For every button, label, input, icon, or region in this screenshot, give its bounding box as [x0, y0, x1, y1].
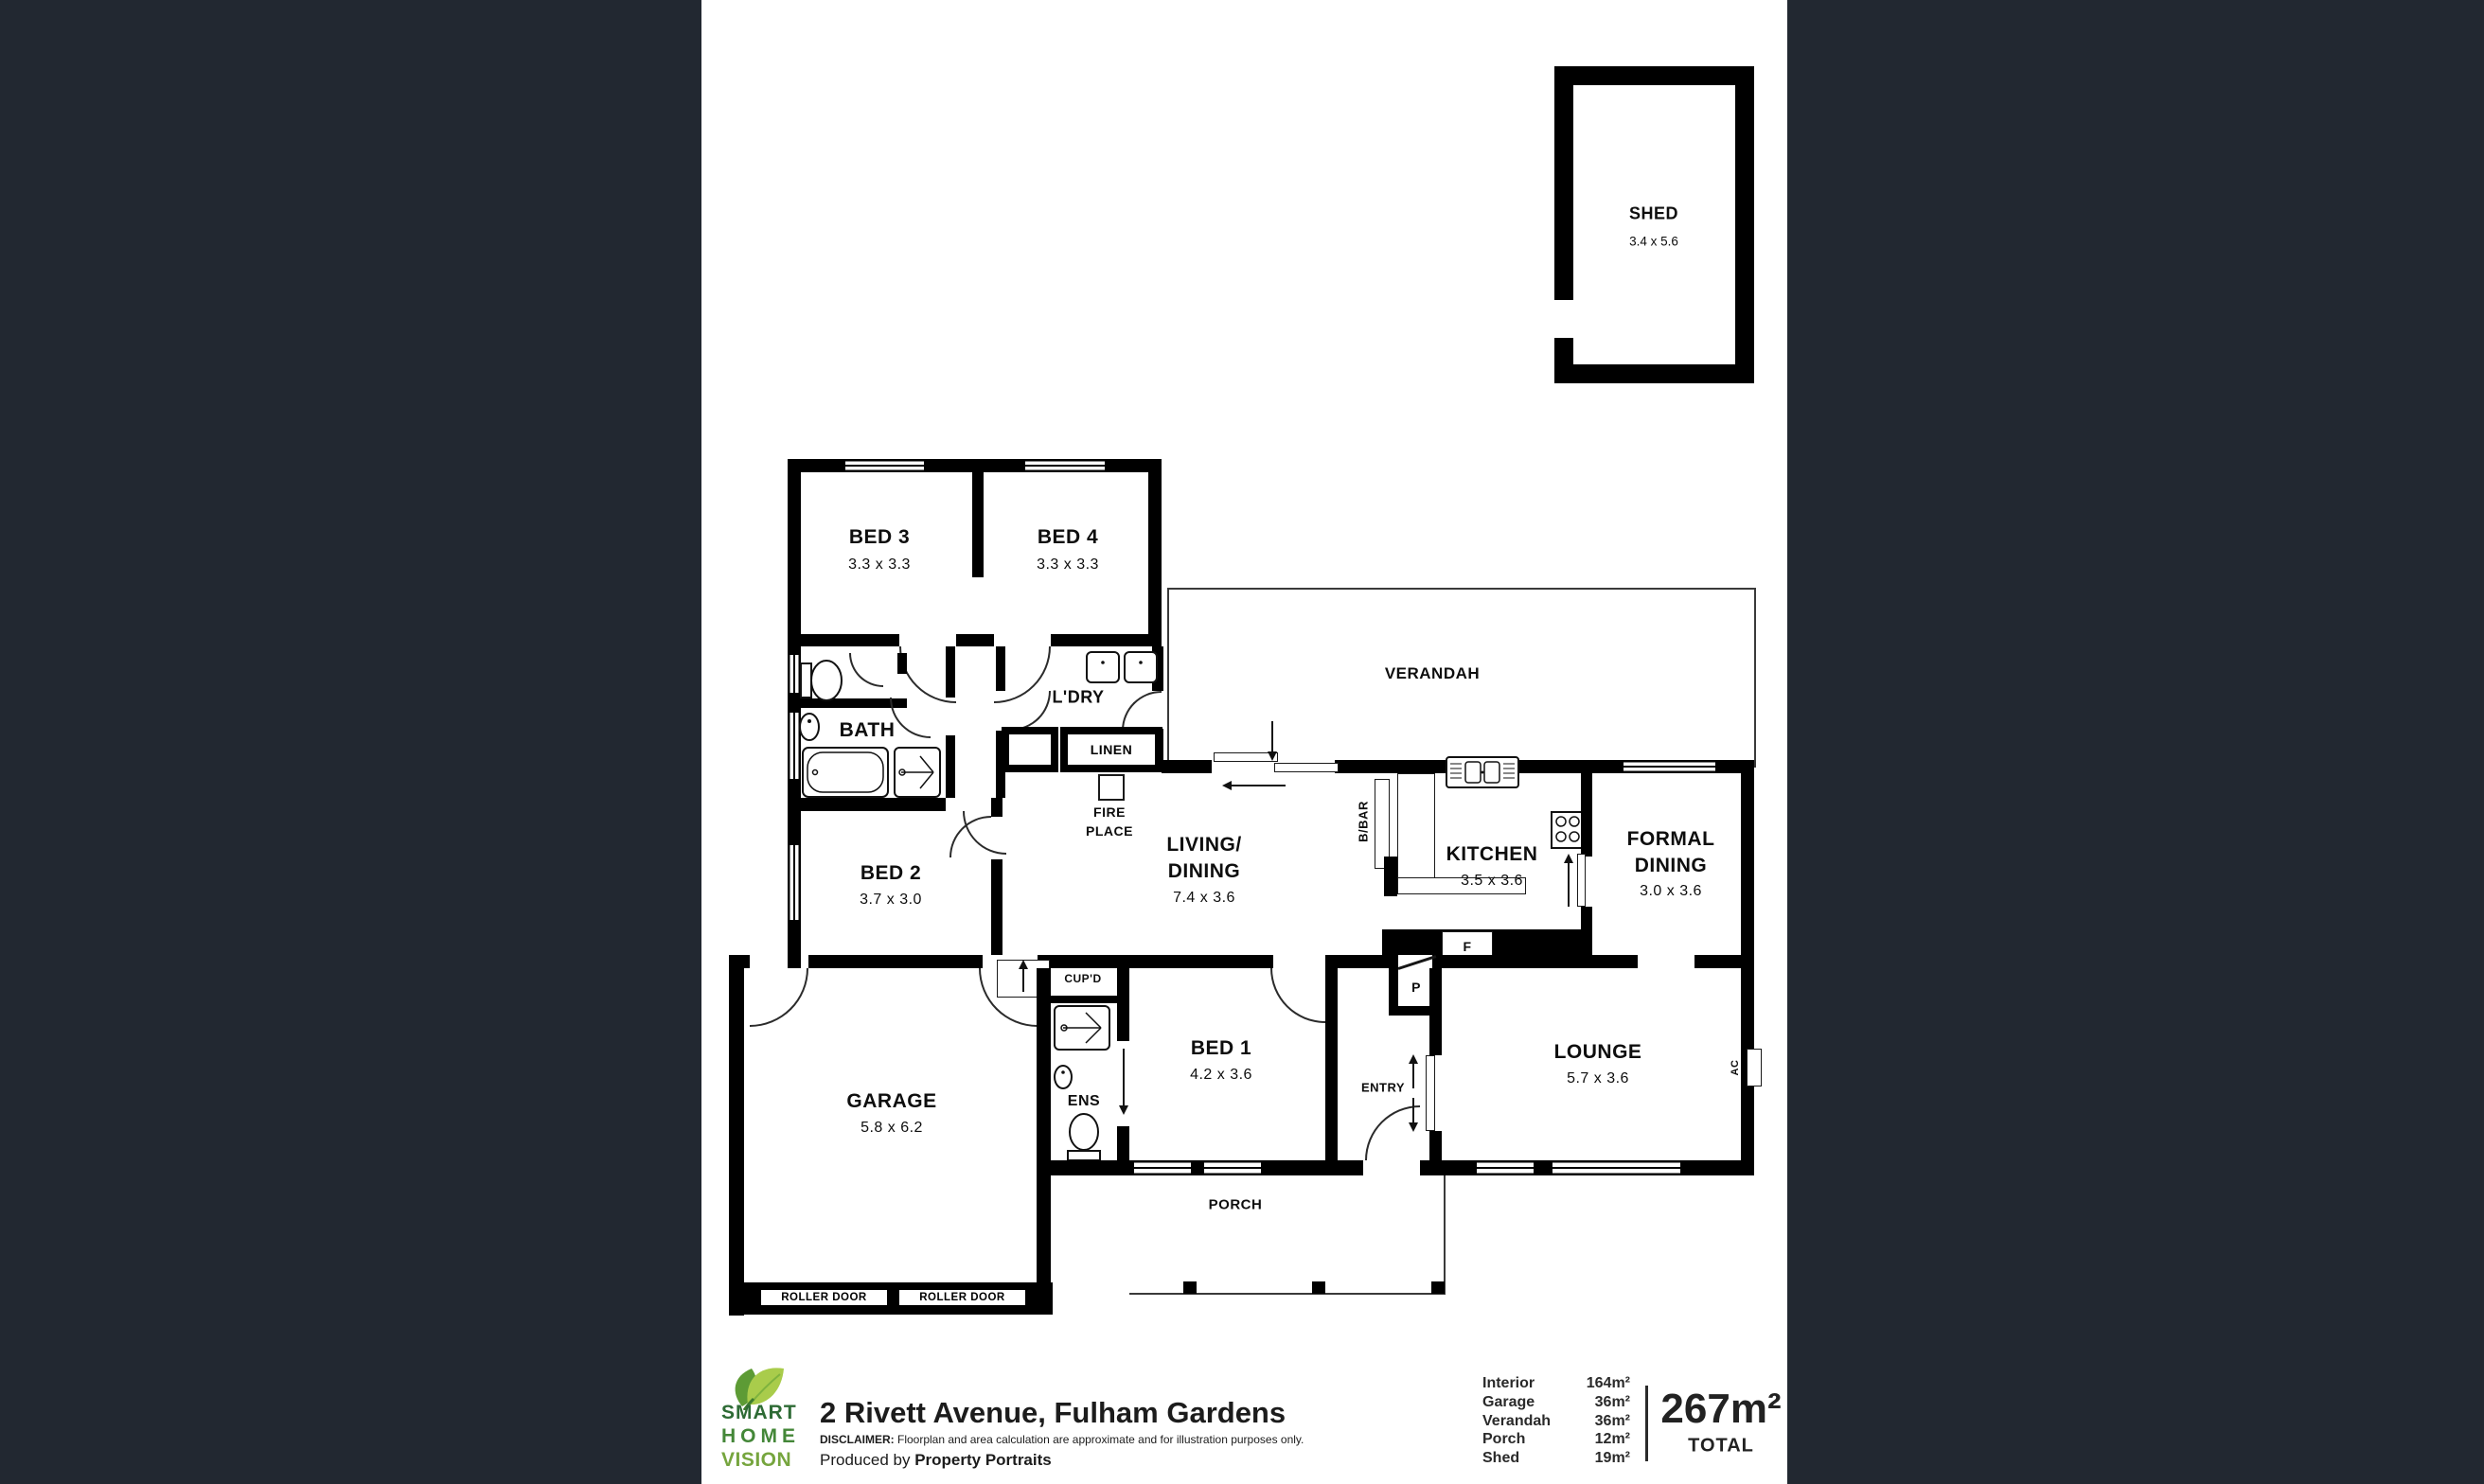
- wall-segment: [729, 968, 744, 1316]
- linen-closet: LINEN: [1060, 727, 1162, 772]
- room-label-lounge: LOUNGE: [1554, 1041, 1642, 1064]
- arrow-up-icon: [1564, 854, 1573, 863]
- wall-segment: [956, 634, 994, 646]
- total-label: TOTAL: [1688, 1436, 1754, 1457]
- wall-segment: [1051, 996, 1117, 1003]
- area-label: Interior: [1482, 1375, 1535, 1392]
- wall-segment: [1519, 760, 1623, 773]
- room-dims-living: 7.4 x 3.6: [1173, 890, 1235, 907]
- arrow-line: [1412, 1098, 1414, 1124]
- arrow-down-icon: [1409, 1122, 1418, 1132]
- room-label-cupd: CUP'D: [1064, 972, 1101, 985]
- kitchen-counter: [1397, 773, 1435, 879]
- fireplace-box: [1098, 774, 1125, 801]
- roller-door-label: ROLLER DOOR: [781, 1292, 866, 1303]
- room-label-ldry: L'DRY: [1052, 688, 1104, 708]
- shower-icon: [1054, 1005, 1110, 1051]
- area-label: Shed: [1482, 1450, 1519, 1467]
- wall-segment: [1735, 66, 1754, 383]
- room-label-bed3: BED 3: [849, 526, 910, 549]
- wall-segment: [1554, 66, 1573, 300]
- logo-text-home: HOME: [721, 1426, 800, 1446]
- room-label-kitchen: KITCHEN: [1446, 843, 1538, 866]
- porch-outline: [1129, 1175, 1446, 1295]
- wall-segment: [1554, 364, 1754, 383]
- produced-by: Produced by Property Portraits: [820, 1451, 1052, 1470]
- disclaimer-label: DISCLAIMER:: [820, 1433, 895, 1446]
- area-row: Interior164m²: [1482, 1375, 1630, 1392]
- area-label: Porch: [1482, 1431, 1525, 1448]
- wall-segment: [1037, 1160, 1363, 1175]
- laundry-tubs-icon: [1086, 651, 1158, 683]
- room-label-entry: ENTRY: [1361, 1081, 1405, 1095]
- bathtub-icon: [802, 747, 889, 798]
- wall-segment: [1117, 1126, 1129, 1160]
- wall-segment: [1162, 760, 1212, 773]
- room-label-living-2: DINING: [1168, 860, 1241, 883]
- wall-segment: [1037, 968, 1051, 1295]
- address: 2 Rivett Avenue, Fulham Gardens: [820, 1396, 1286, 1430]
- room-label-bed2: BED 2: [861, 862, 921, 885]
- room-label-pantry: P: [1411, 980, 1421, 995]
- window: [1134, 1160, 1191, 1175]
- arrow-down-icon: [1268, 751, 1277, 761]
- area-label: Garage: [1482, 1394, 1535, 1411]
- wall-segment: [1335, 760, 1446, 773]
- sliding-door-kitchen: [1577, 854, 1586, 907]
- toilet-icon: [800, 658, 843, 703]
- room-label-bed1: BED 1: [1191, 1037, 1251, 1060]
- wall-segment: [1384, 857, 1397, 896]
- room-label-living-1: LIVING/: [1166, 834, 1241, 857]
- arrow-line: [1231, 785, 1286, 786]
- arrow-line: [1123, 1049, 1125, 1107]
- wall-segment: [1117, 968, 1129, 1041]
- toilet-icon: [1064, 1113, 1104, 1162]
- wall-segment: [1429, 968, 1442, 1055]
- room-label-bed4: BED 4: [1038, 526, 1098, 549]
- window: [1025, 459, 1105, 472]
- area-divider: [1645, 1386, 1648, 1461]
- area-value: 36m²: [1595, 1394, 1630, 1411]
- room-label-fireplace-2: PLACE: [1086, 823, 1133, 839]
- disclaimer-text: Floorplan and area calculation are appro…: [895, 1433, 1304, 1446]
- wall-segment: [946, 646, 955, 698]
- wall-segment: [991, 798, 1002, 817]
- wall-segment: [788, 798, 946, 811]
- roller-door-box: ROLLER DOOR: [897, 1288, 1027, 1307]
- wall-segment: [729, 955, 750, 968]
- room-label-porch: PORCH: [1209, 1197, 1263, 1213]
- room-label-formal-1: FORMAL: [1627, 828, 1715, 851]
- sink-icon: [1053, 1064, 1073, 1090]
- wall-segment: [1554, 66, 1754, 85]
- window: [845, 459, 924, 472]
- area-row: Verandah36m²: [1482, 1413, 1630, 1430]
- wall-segment: [1694, 955, 1754, 968]
- wall-segment: [1148, 459, 1162, 646]
- wall-segment: [1051, 634, 1162, 646]
- room-label-bath: BATH: [840, 719, 896, 742]
- sink-icon: [798, 712, 821, 742]
- arrow-line: [1568, 863, 1570, 907]
- wall-segment: [1325, 955, 1389, 968]
- room-label-ens: ENS: [1068, 1093, 1100, 1110]
- wall-segment: [946, 735, 955, 798]
- room-dims-shed: 3.4 x 5.6: [1629, 235, 1678, 249]
- floorplan-page: SHED 3.4 x 5.6 VERANDAH BED 3 3.3 x 3.3 …: [0, 0, 2484, 1484]
- window: [1552, 1160, 1680, 1175]
- kitchen-sink-icon: [1446, 756, 1519, 788]
- area-summary: Interior164m² Garage36m² Verandah36m² Po…: [1482, 1375, 1630, 1467]
- window: [1623, 760, 1715, 773]
- area-value: 36m²: [1595, 1413, 1630, 1430]
- area-row: Shed19m²: [1482, 1450, 1630, 1467]
- roller-door-label: ROLLER DOOR: [919, 1292, 1004, 1303]
- arrow-line: [1022, 967, 1024, 992]
- room-dims-lounge: 5.7 x 3.6: [1567, 1070, 1629, 1087]
- arrow-down-icon: [1119, 1105, 1128, 1115]
- arrow-line: [1412, 1062, 1414, 1088]
- room-label-ac: AC: [1730, 1060, 1741, 1076]
- produced-by-name: Property Portraits: [914, 1451, 1052, 1469]
- room-label-formal-2: DINING: [1635, 855, 1708, 877]
- produced-by-prefix: Produced by: [820, 1451, 914, 1469]
- wall-segment: [1429, 1131, 1442, 1160]
- shower-icon: [894, 747, 941, 798]
- room-dims-formal: 3.0 x 3.6: [1640, 883, 1702, 900]
- stove-icon: [1551, 811, 1585, 849]
- logo-text-smart: SMART: [721, 1403, 797, 1422]
- area-value: 12m²: [1595, 1431, 1630, 1448]
- wall-segment: [1325, 968, 1338, 1160]
- arrow-left-icon: [1222, 781, 1232, 790]
- wall-segment: [808, 955, 983, 968]
- total-value: 267m²: [1660, 1386, 1781, 1433]
- wall-segment: [1581, 773, 1592, 857]
- disclaimer: DISCLAIMER: Floorplan and area calculati…: [820, 1433, 1304, 1446]
- arrow-line: [1271, 721, 1273, 751]
- area-row: Porch12m²: [1482, 1431, 1630, 1448]
- wall-segment: [972, 459, 984, 577]
- room-label-verandah: VERANDAH: [1385, 664, 1480, 683]
- ac-unit: [1747, 1049, 1762, 1086]
- room-label-bbar: B/BAR: [1357, 801, 1371, 842]
- wall-segment: [1715, 760, 1754, 773]
- porch-post: [1183, 1281, 1197, 1294]
- porch-post: [1431, 1281, 1445, 1294]
- room-label-fridge: F: [1463, 939, 1471, 954]
- hall-closet: [1002, 727, 1058, 772]
- window: [788, 655, 801, 693]
- window: [1477, 1160, 1534, 1175]
- room-dims-bed1: 4.2 x 3.6: [1190, 1067, 1252, 1084]
- window: [1204, 1160, 1261, 1175]
- room-dims-garage: 5.8 x 6.2: [861, 1120, 923, 1137]
- room-label-fireplace-1: FIRE: [1093, 804, 1126, 820]
- wall-segment: [991, 859, 1002, 955]
- room-dims-kitchen: 3.5 x 3.6: [1461, 873, 1523, 890]
- wall-segment: [788, 634, 899, 646]
- room-label-shed: SHED: [1629, 204, 1678, 224]
- wall-segment: [996, 646, 1005, 691]
- room-dims-bed3: 3.3 x 3.3: [848, 556, 911, 574]
- window: [788, 845, 801, 920]
- sliding-door-living: [1274, 763, 1339, 772]
- area-value: 164m²: [1587, 1375, 1630, 1392]
- wall-segment: [1038, 955, 1273, 968]
- room-label-linen: LINEN: [1091, 742, 1133, 757]
- arrow-up-icon: [1409, 1054, 1418, 1064]
- wall-segment: [897, 653, 907, 674]
- room-dims-bed2: 3.7 x 3.0: [860, 892, 922, 909]
- bbar-counter: [1375, 779, 1390, 869]
- room-label-garage: GARAGE: [846, 1090, 936, 1113]
- roller-door-box: ROLLER DOOR: [759, 1288, 889, 1307]
- wall-segment: [1442, 955, 1638, 968]
- arrow-up-icon: [1019, 960, 1028, 969]
- wall-segment: [1581, 907, 1592, 929]
- logo-text-vision: VISION: [721, 1450, 791, 1470]
- area-row: Garage36m²: [1482, 1394, 1630, 1411]
- porch-post: [1312, 1281, 1325, 1294]
- room-dims-bed4: 3.3 x 3.3: [1037, 556, 1099, 574]
- area-label: Verandah: [1482, 1413, 1551, 1430]
- area-value: 19m²: [1595, 1450, 1630, 1467]
- sliding-door-lounge: [1426, 1055, 1435, 1131]
